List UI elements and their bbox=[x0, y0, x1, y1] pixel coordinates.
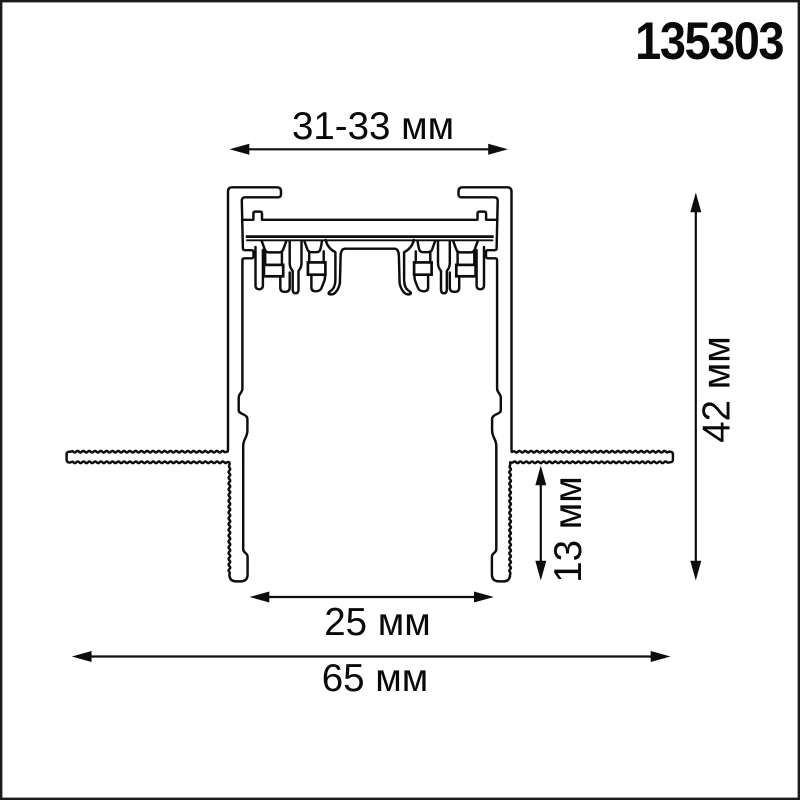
svg-text:65 мм: 65 мм bbox=[322, 657, 428, 700]
svg-text:42 мм: 42 мм bbox=[696, 336, 739, 442]
svg-text:135303: 135303 bbox=[635, 12, 783, 71]
svg-text:13 мм: 13 мм bbox=[547, 476, 590, 582]
svg-text:31-33 мм: 31-33 мм bbox=[292, 105, 454, 148]
svg-text:25 мм: 25 мм bbox=[324, 601, 430, 644]
